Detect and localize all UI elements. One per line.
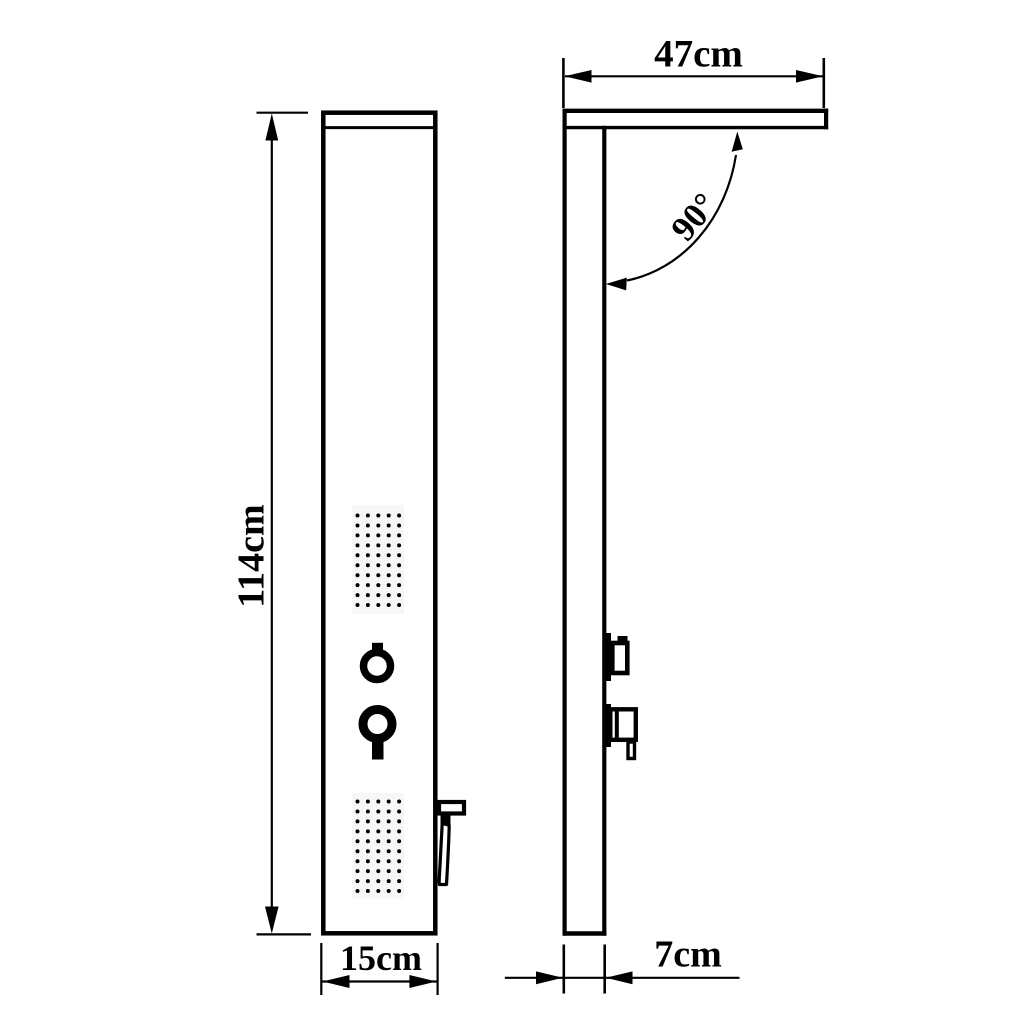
svg-text:15cm: 15cm <box>340 938 422 978</box>
svg-text:114cm: 114cm <box>231 504 273 607</box>
svg-text:7cm: 7cm <box>654 934 722 976</box>
svg-text:47cm: 47cm <box>654 33 743 76</box>
